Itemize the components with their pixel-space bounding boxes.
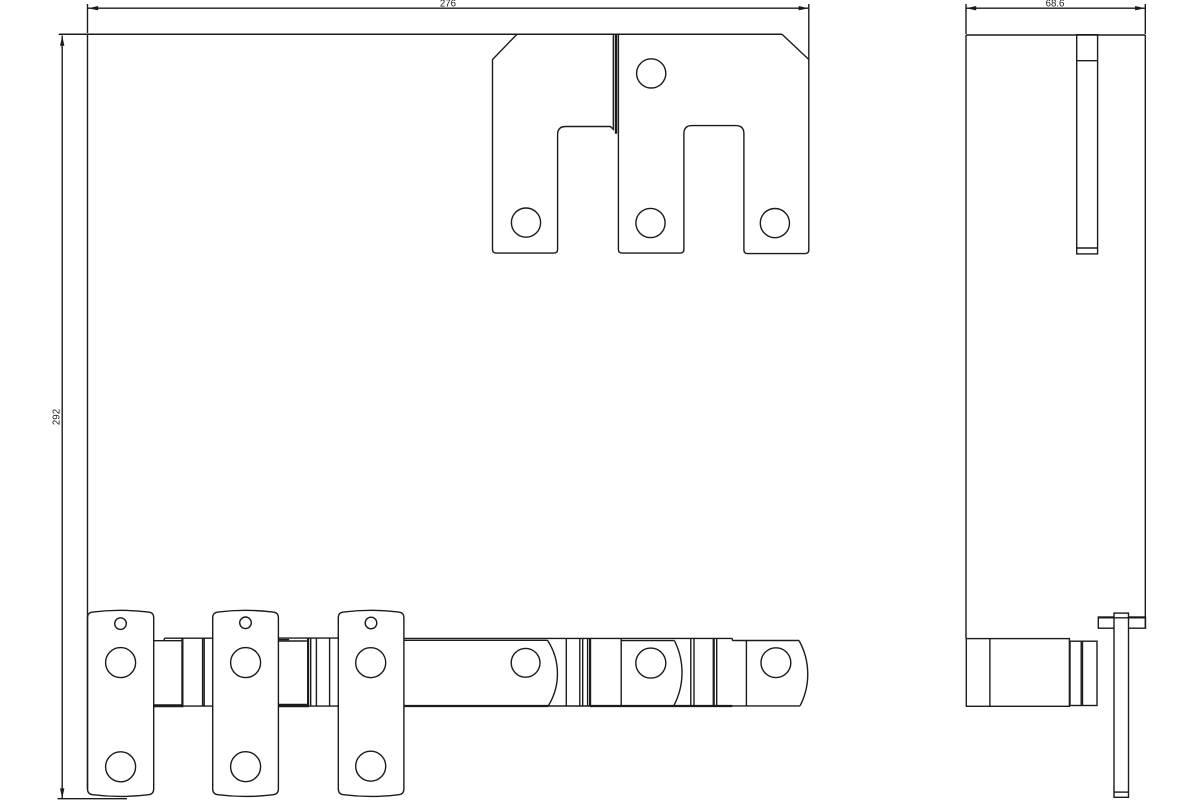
svg-text:68.6: 68.6 xyxy=(1046,0,1065,10)
svg-text:276: 276 xyxy=(440,0,456,10)
svg-text:292: 292 xyxy=(52,409,63,425)
